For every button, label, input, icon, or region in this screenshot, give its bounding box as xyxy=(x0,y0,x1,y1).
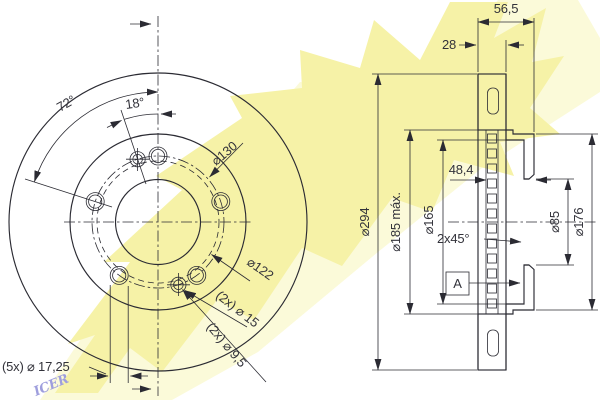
icer-watermark: ICER xyxy=(31,0,600,400)
svg-text:⌀185 máx.: ⌀185 máx. xyxy=(388,192,403,252)
chamfer-callout: 2x45° xyxy=(437,231,521,246)
detail-a-callout: A xyxy=(446,272,520,295)
svg-text:⌀294: ⌀294 xyxy=(357,208,372,237)
svg-text:28: 28 xyxy=(442,37,456,52)
svg-text:A: A xyxy=(453,276,462,291)
brake-disc-technical-drawing: ICER 72° xyxy=(0,0,600,400)
svg-text:48,4: 48,4 xyxy=(449,162,474,177)
svg-text:⌀85: ⌀85 xyxy=(547,211,562,233)
vent-channel-slot-bottom xyxy=(488,330,499,356)
svg-text:2x45°: 2x45° xyxy=(437,231,469,246)
angle-18-arc xyxy=(125,114,158,119)
svg-text:56,5: 56,5 xyxy=(494,1,519,16)
radial-line-108 xyxy=(121,110,146,184)
angle-18-label: 18° xyxy=(124,94,145,112)
friction-ring-section-bottom xyxy=(478,314,506,370)
bolt-holes-label: (5x) ⌀ 17,25 xyxy=(2,359,70,374)
hat-section-bottom xyxy=(506,265,534,314)
svg-text:⌀176: ⌀176 xyxy=(571,208,586,237)
svg-text:⌀165: ⌀165 xyxy=(421,206,436,235)
